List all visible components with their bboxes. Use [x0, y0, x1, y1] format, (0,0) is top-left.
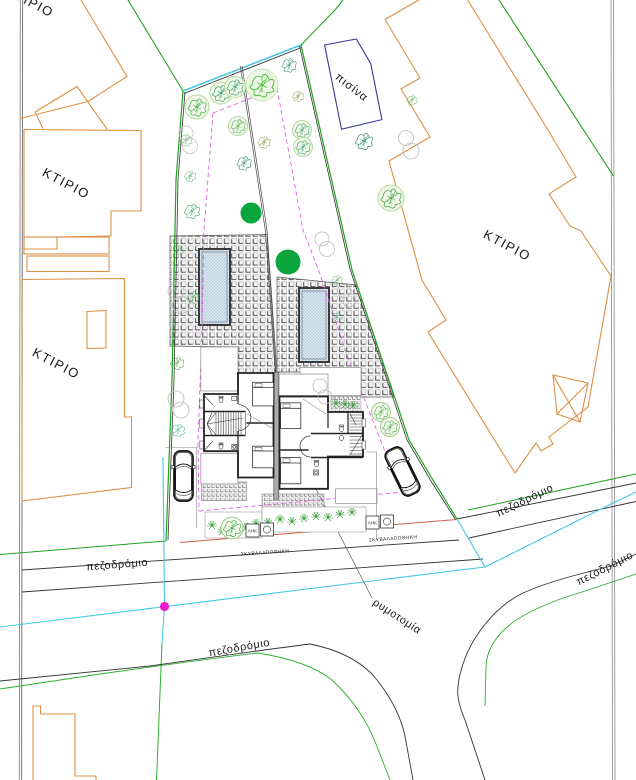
svg-text:ΛΗΚ: ΛΗΚ [368, 521, 378, 526]
svg-text:ΛΗΚ: ΛΗΚ [248, 529, 258, 534]
